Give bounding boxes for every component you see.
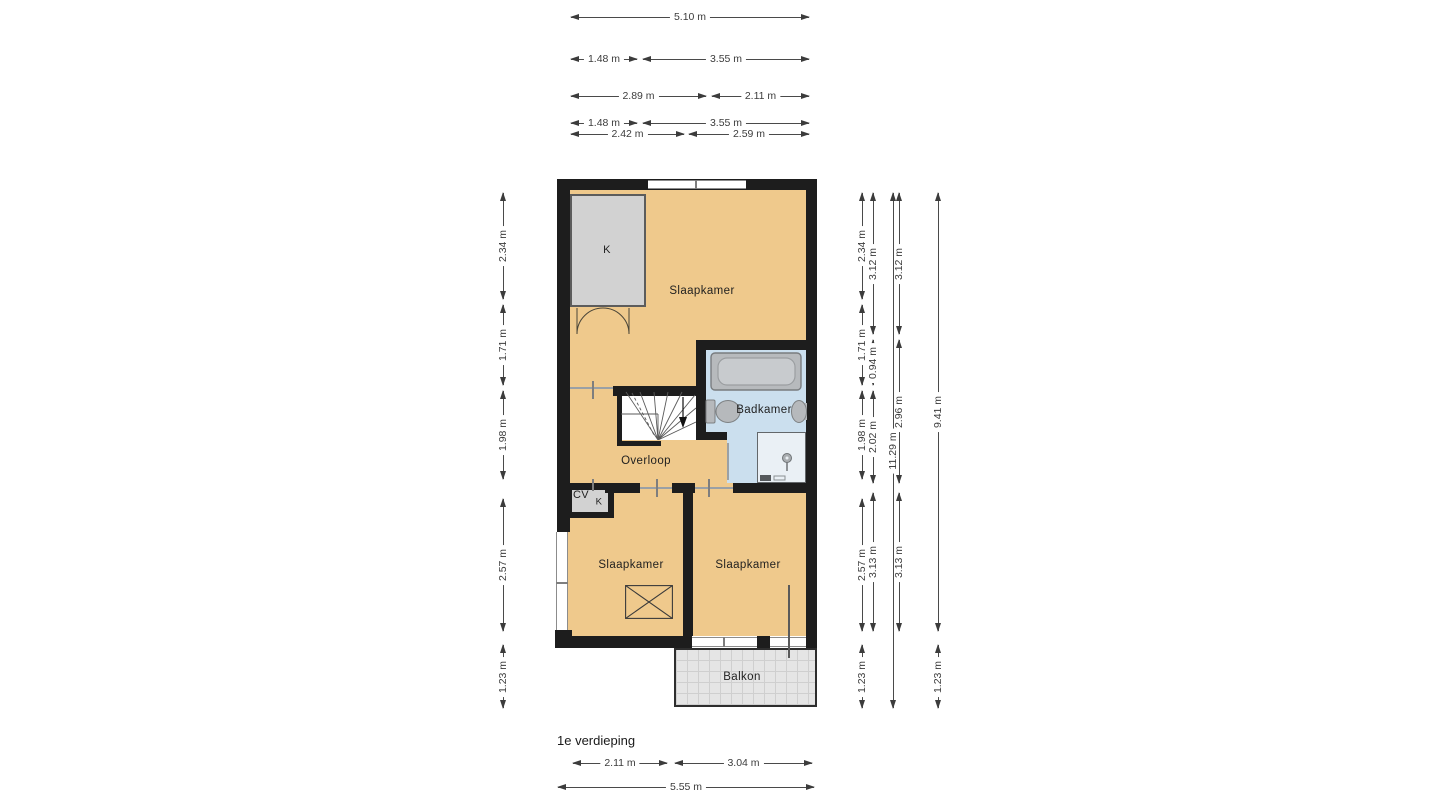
dimension-line-2.11m: 2.11 m — [712, 96, 809, 97]
dimension-arrow — [859, 192, 865, 201]
wall-bathroom-corridor — [696, 432, 727, 440]
dimension-arrow — [859, 390, 865, 399]
dimension-label: 2.42 m — [607, 129, 647, 141]
dimension-line-2.59m: 2.59 m — [689, 134, 809, 135]
dimension-label: 1.98 m — [498, 415, 510, 455]
dimension-arrow — [801, 14, 810, 20]
dimension-arrow — [711, 93, 720, 99]
dimension-arrow — [557, 784, 566, 790]
window-balcony-tick — [723, 637, 725, 647]
room-label-slaapkamer-top: Slaapkamer — [669, 285, 734, 297]
dimension-arrow — [570, 56, 579, 62]
dimension-label: 1.23 m — [933, 656, 945, 696]
dimension-arrow — [801, 56, 810, 62]
dimension-line-3.13m: 3.13 m — [873, 493, 874, 631]
wall-landing-bedrooms-a — [557, 483, 572, 493]
doorway-bedroom-left-tick — [656, 479, 658, 497]
dimension-arrow — [935, 623, 941, 632]
stairs-edge-bottom — [617, 441, 661, 446]
floorplan-canvas: 1e verdieping SlaapkamerSlaapkamerSlaapk… — [0, 0, 1440, 810]
dimension-arrow — [870, 390, 876, 399]
dimension-line-1.23m: 1.23 m — [938, 645, 939, 708]
dimension-arrow — [500, 390, 506, 399]
dimension-label: 3.12 m — [868, 243, 880, 283]
wall-exterior-right — [806, 179, 817, 648]
dimension-arrow — [804, 760, 813, 766]
doorway-cv-tick — [592, 479, 594, 491]
room-label-kast: K — [603, 244, 611, 256]
dimension-arrow — [500, 377, 506, 386]
dimension-label: 3.13 m — [894, 542, 906, 582]
dimension-arrow — [896, 475, 902, 484]
shower-drain-icon — [760, 475, 786, 481]
dimension-label: 5.55 m — [666, 782, 706, 794]
dimension-line-9.41m: 9.41 m — [938, 193, 939, 631]
dimension-arrow — [870, 623, 876, 632]
dimension-arrow — [500, 471, 506, 480]
doorway-bedroom-top-tick — [592, 381, 594, 399]
floor-title: 1e verdieping — [557, 733, 635, 748]
dimension-arrow — [500, 192, 506, 201]
dimension-line-1.48m: 1.48 m — [571, 59, 637, 60]
dimension-arrow — [642, 120, 651, 126]
dimension-line-3.12m: 3.12 m — [873, 193, 874, 334]
wall-balcony-post — [757, 636, 770, 648]
dimension-label: 5.10 m — [670, 12, 710, 24]
dimension-arrow — [896, 492, 902, 501]
dimension-arrow — [500, 291, 506, 300]
wall-exterior-left-upper — [557, 179, 570, 532]
room-label-badkamer: Badkamer — [736, 404, 792, 416]
dimension-label: 3.04 m — [723, 758, 763, 770]
dimension-label: 2.11 m — [741, 91, 780, 103]
dimension-arrow — [859, 377, 865, 386]
dimension-label: 2.11 m — [600, 758, 639, 770]
dimension-arrow — [659, 760, 668, 766]
dimension-arrow — [859, 291, 865, 300]
dimension-line-2.89m: 2.89 m — [571, 96, 706, 97]
dimension-arrow — [859, 498, 865, 507]
dimension-label: 9.41 m — [933, 392, 945, 432]
window-left — [556, 532, 568, 630]
dimension-label: 0.94 m — [868, 342, 880, 382]
window-top-tick — [695, 180, 697, 189]
wall-landing-bedrooms-d — [733, 483, 817, 493]
dimension-arrow — [570, 131, 579, 137]
balcony-door-leaf — [788, 585, 790, 658]
dimension-arrow — [676, 131, 685, 137]
dimension-line-0.94m: 0.94 m — [873, 340, 874, 385]
dimension-arrow — [935, 700, 941, 709]
dimension-arrow — [896, 192, 902, 201]
dimension-line-1.23m: 1.23 m — [503, 645, 504, 708]
dimension-label: 2.89 m — [618, 91, 658, 103]
dimension-arrow — [629, 120, 638, 126]
dimension-label: 2.34 m — [498, 226, 510, 266]
dimension-arrow — [801, 120, 810, 126]
dimension-line-3.13m: 3.13 m — [899, 493, 900, 631]
dimension-arrow — [896, 623, 902, 632]
dimension-arrow — [896, 339, 902, 348]
dimension-line-3.55m: 3.55 m — [643, 59, 809, 60]
dimension-label: 2.57 m — [498, 545, 510, 585]
bathroom-door-line — [727, 443, 729, 480]
dimension-line-2.34m: 2.34 m — [862, 193, 863, 299]
window-top — [648, 180, 746, 189]
dimension-line-5.10m: 5.10 m — [571, 17, 809, 18]
shower-head-icon — [778, 450, 796, 478]
dimension-label: 2.96 m — [894, 391, 906, 431]
dimension-line-1.71m: 1.71 m — [862, 305, 863, 385]
dimension-arrow — [570, 93, 579, 99]
dimension-arrow — [935, 644, 941, 653]
dimension-label: 1.48 m — [584, 54, 624, 66]
dimension-arrow — [859, 700, 865, 709]
hallway-corridor-floor — [696, 440, 727, 483]
dimension-line-2.42m: 2.42 m — [571, 134, 684, 135]
dimension-line-2.57m: 2.57 m — [503, 499, 504, 631]
doorway-bedroom-right-line — [695, 487, 733, 489]
dimension-line-2.57m: 2.57 m — [862, 499, 863, 631]
dimension-arrow — [896, 326, 902, 335]
dimension-line-1.23m: 1.23 m — [862, 645, 863, 708]
dimension-arrow — [801, 131, 810, 137]
dimension-arrow — [935, 192, 941, 201]
stairs-icon — [620, 391, 696, 440]
dimension-arrow — [570, 14, 579, 20]
room-label-slaapkamer-right: Slaapkamer — [715, 559, 780, 571]
dimension-arrow — [500, 623, 506, 632]
dimension-arrow — [698, 93, 707, 99]
dimension-arrow — [572, 760, 581, 766]
dimension-label: 1.71 m — [498, 325, 510, 365]
room-label-balkon: Balkon — [723, 671, 761, 683]
dimension-line-1.48m: 1.48 m — [571, 123, 637, 124]
dimension-line-3.12m: 3.12 m — [899, 193, 900, 334]
dimension-arrow — [870, 326, 876, 335]
dimension-arrow — [801, 93, 810, 99]
wall-bathroom-top — [696, 340, 817, 350]
dimension-line-2.11m: 2.11 m — [573, 763, 667, 764]
dimension-arrow — [500, 644, 506, 653]
dimension-line-2.34m: 2.34 m — [503, 193, 504, 299]
dimension-label: 3.13 m — [868, 542, 880, 582]
room-label-kast-klein: K — [596, 497, 603, 508]
bathtub-icon — [710, 352, 802, 391]
dimension-arrow — [688, 131, 697, 137]
dimension-label: 3.12 m — [894, 243, 906, 283]
dimension-arrow — [500, 700, 506, 709]
dimension-arrow — [629, 56, 638, 62]
room-label-cv-kast: CV — [573, 489, 589, 501]
dimension-arrow — [870, 192, 876, 201]
dimension-line-5.55m: 5.55 m — [558, 787, 814, 788]
dimension-label: 2.02 m — [868, 417, 880, 457]
double-door-icon — [575, 306, 633, 338]
dimension-arrow — [870, 492, 876, 501]
dimension-line-1.71m: 1.71 m — [503, 305, 504, 385]
dimension-arrow — [806, 784, 815, 790]
dimension-line-1.98m: 1.98 m — [503, 391, 504, 479]
dimension-label: 3.55 m — [706, 54, 746, 66]
doorway-bedroom-right-tick — [708, 479, 710, 497]
dimension-line-2.96m: 2.96 m — [899, 340, 900, 483]
room-label-slaapkamer-left: Slaapkamer — [598, 559, 663, 571]
bed-icon — [625, 585, 673, 619]
dimension-label: 1.23 m — [857, 656, 869, 696]
dimension-arrow — [500, 304, 506, 313]
dimension-arrow — [859, 644, 865, 653]
window-left-tick — [556, 582, 568, 584]
dimension-line-3.55m: 3.55 m — [643, 123, 809, 124]
dimension-arrow — [642, 56, 651, 62]
dimension-line-1.98m: 1.98 m — [862, 391, 863, 479]
wall-between-bedrooms — [683, 493, 693, 636]
wall-landing-bedrooms-b — [605, 483, 640, 493]
dimension-label: 2.59 m — [729, 129, 769, 141]
dimension-line-2.02m: 2.02 m — [873, 391, 874, 483]
dimension-arrow — [859, 471, 865, 480]
dimension-arrow — [570, 120, 579, 126]
wall-bathroom-left — [696, 340, 706, 440]
dimension-line-3.04m: 3.04 m — [675, 763, 812, 764]
room-label-overloop: Overloop — [621, 455, 671, 467]
dimension-arrow — [674, 760, 683, 766]
dimension-arrow — [500, 498, 506, 507]
dimension-label: 1.23 m — [498, 656, 510, 696]
dimension-arrow — [859, 623, 865, 632]
wall-exterior-bottom-left — [557, 636, 692, 648]
wall-landing-bedrooms-c — [672, 483, 695, 493]
dimension-arrow — [859, 304, 865, 313]
dimension-arrow — [870, 475, 876, 484]
dimension-arrow — [890, 700, 896, 709]
